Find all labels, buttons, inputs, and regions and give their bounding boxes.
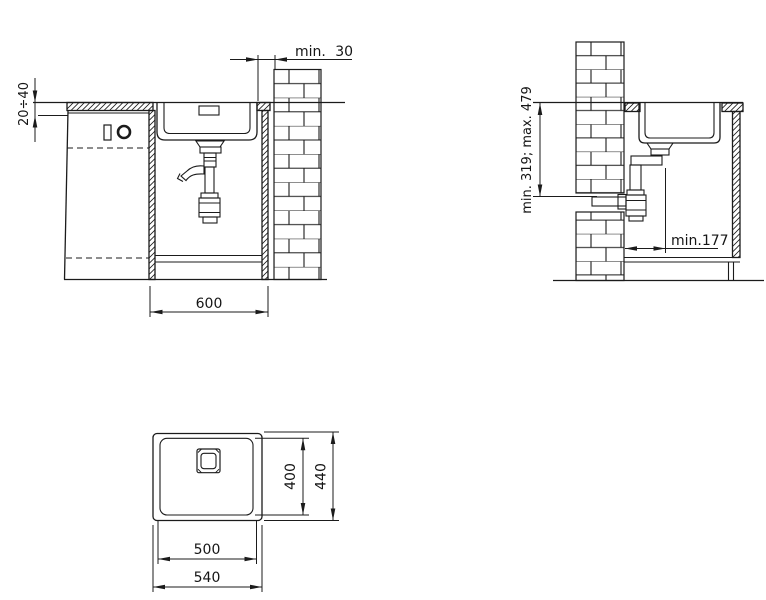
bowl-depth-label: 400 <box>283 463 299 490</box>
cabinet-back-panel <box>733 112 741 258</box>
cabinet-knob <box>118 126 130 138</box>
sink-cabinet-right-panel <box>262 111 268 280</box>
sink-bowl-front <box>157 103 257 141</box>
dimension-worktop-thickness: 20÷40 <box>17 78 68 142</box>
overflow-opening <box>199 106 219 115</box>
cabinet-width-label: 600 <box>196 296 223 312</box>
sink-outer-rim <box>153 434 262 521</box>
dimension-bowl-width: 500 <box>158 520 257 564</box>
worktop-section-left <box>67 103 153 111</box>
siphon-front <box>178 141 225 223</box>
front-view: min. 30 20÷40 600 <box>17 44 353 317</box>
cabinet-knob-slot <box>104 125 111 140</box>
outlet-height-label: min. 319; max. 479 <box>520 86 535 214</box>
sink-cabinet-left-panel <box>149 111 155 280</box>
top-view: 400 440 500 540 <box>153 432 339 592</box>
overall-width-label: 540 <box>194 570 221 586</box>
dimension-cabinet-width: 600 <box>150 286 268 317</box>
cabinet-leg <box>729 262 734 280</box>
sink-bowl-plan <box>160 438 253 515</box>
brick-wall-side-lower <box>576 212 624 281</box>
bowl-width-label: 500 <box>194 542 221 558</box>
brick-wall-side-upper <box>576 42 624 193</box>
cabinet-shelf-side <box>624 258 740 263</box>
installation-drawing-page: min. 30 20÷40 600 <box>0 0 766 600</box>
wall-to-drain-label: min.177 <box>671 233 729 249</box>
worktop-thickness-label: 20÷40 <box>17 82 32 126</box>
overall-depth-label: 440 <box>314 463 330 490</box>
brick-wall-front <box>274 70 321 280</box>
cabinet-shelf <box>155 256 262 263</box>
side-view: min. 319; max. 479 min.177 <box>520 42 764 281</box>
technical-drawing: min. 30 20÷40 600 <box>0 0 766 600</box>
worktop-side-left <box>625 103 640 112</box>
dimension-overall-depth: 440 <box>264 432 339 521</box>
worktop-section-right <box>257 103 270 111</box>
wall-outlet-pipe <box>592 197 626 206</box>
adjacent-cabinet <box>65 111 150 280</box>
wall-clearance-label: min. 30 <box>295 44 353 60</box>
worktop-side-right <box>722 103 743 112</box>
dishwasher-branch <box>181 166 204 181</box>
dimension-bowl-depth: 400 <box>255 438 309 515</box>
sink-bowl-side <box>639 103 720 144</box>
drain-plan <box>197 449 220 473</box>
